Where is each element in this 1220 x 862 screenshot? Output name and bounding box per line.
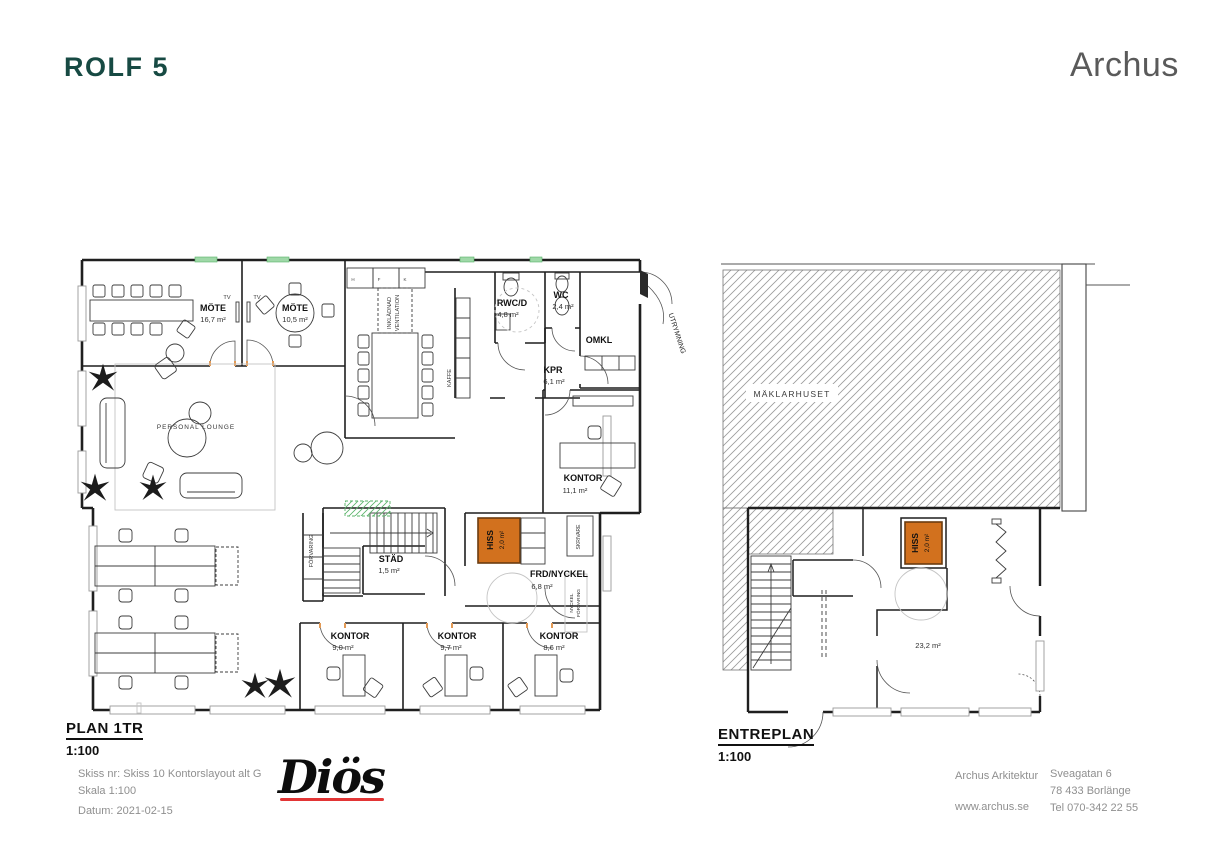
lift-area: 2,0 m² [924, 533, 931, 552]
address-city: 78 433 Borlänge [1050, 783, 1138, 800]
room-label: KONTOR [438, 631, 477, 641]
address-phone: Tel 070-342 22 55 [1050, 800, 1138, 817]
brand-logo: Archus [1070, 46, 1179, 85]
cabinet-letter: K [403, 277, 406, 282]
firm-website[interactable]: www.archus.se [955, 799, 1038, 816]
window-markers [195, 257, 545, 712]
room-area: 4,8 m² [497, 310, 519, 319]
room-area: 11,1 m² [563, 486, 588, 495]
meeting-room-1-furniture [90, 285, 250, 339]
cabinet-letter: F [378, 277, 381, 282]
tv-label: TV [253, 295, 260, 301]
plan1-title: PLAN 1TR [66, 720, 143, 740]
room-label: OMKL [586, 335, 613, 345]
floor-plan-entre: MÄKLARHUSET HISS 2,0 m² 23,2 m² [713, 256, 1133, 756]
room-label: KPR [543, 365, 563, 375]
firm-address: Sveagatan 6 78 433 Borlänge Tel 070-342 … [1050, 766, 1138, 817]
plan1-caption: PLAN 1TR 1:100 [66, 720, 143, 758]
sketch-scale: Skala 1:100 [78, 783, 261, 800]
utrymning-label: UTRYMNING [667, 312, 687, 354]
lift-area: 2,0 m² [499, 530, 506, 549]
room-label: MÖTE [200, 303, 226, 313]
stairs [323, 501, 437, 593]
tv-label: TV [223, 295, 230, 301]
sketch-date: Datum: 2021-02-15 [78, 803, 261, 820]
room-area: 6,1 m² [543, 377, 565, 386]
dios-logo: Diös [278, 750, 398, 801]
nyckel-label: FÖRVARING [575, 589, 582, 617]
small-offices-furniture [137, 655, 573, 713]
vent-label: INKLÄDNAD [386, 297, 393, 329]
dios-logo-text: Diös [278, 750, 398, 804]
address-street: Sveagatan 6 [1050, 766, 1138, 783]
room-label: KONTOR [540, 631, 579, 641]
room-area: 8,6 m² [543, 643, 565, 652]
room-label: WC [554, 290, 569, 300]
room-area: 16,7 m² [200, 315, 226, 324]
firm-name: Archus Arkitektur [955, 768, 1038, 785]
room-label: STÄD [379, 554, 404, 564]
open-office-desks [95, 529, 238, 689]
plan1-scale: 1:100 [66, 743, 143, 758]
wc-fixtures [495, 273, 635, 370]
plan2-caption: ENTREPLAN 1:100 [718, 726, 814, 764]
plan2-scale: 1:100 [718, 749, 814, 764]
forvaring-label: FÖRVARING [308, 535, 315, 568]
room-area: 2,4 m² [552, 302, 574, 311]
room-label: MÄKLARHUSET [754, 389, 831, 399]
sketch-info: Skiss nr: Skiss 10 Kontorslayout alt G S… [78, 766, 261, 820]
door-jambs [210, 361, 552, 628]
lift-label: HISS [910, 533, 920, 553]
room-label: RWC/D [497, 298, 528, 308]
drawing-sheet: ROLF 5 Archus [0, 0, 1220, 862]
skrivare-label: SKRIVARE [576, 524, 582, 550]
escape-route [640, 270, 664, 324]
room-area: 9,7 m² [440, 643, 462, 652]
room-area: 10,5 m² [282, 315, 308, 324]
room-label: KONTOR [564, 473, 603, 483]
entre-windows [833, 641, 1044, 716]
sketch-number: Skiss nr: Skiss 10 Kontorslayout alt G [78, 766, 261, 783]
nyckel-label: NYCKEL [569, 593, 575, 613]
room-area: 6,8 m² [531, 582, 553, 591]
firm-info: Archus Arkitektur www.archus.se [955, 768, 1038, 816]
room-label: KONTOR [331, 631, 370, 641]
floor-plan-1tr: MÖTE 16,7 m² TV TV MÖTE 10,5 m² H F K IN… [75, 256, 690, 718]
room-label: FRD/NYCKEL [530, 569, 589, 579]
room-label: MÖTE [282, 303, 308, 313]
room-area: 1,5 m² [378, 566, 400, 575]
room-area: 9,0 m² [332, 643, 354, 652]
room-label: PERSONAL LOUNGE [157, 424, 235, 431]
cabinet-letter: H [351, 277, 354, 282]
existing-building-hatch [721, 264, 1130, 670]
lift-label: HISS [485, 530, 495, 550]
vent-label: VENTILATION [395, 295, 401, 331]
kaffe-label: KAFFE [447, 369, 453, 387]
plan2-title: ENTREPLAN [718, 726, 814, 746]
page-title: ROLF 5 [64, 52, 169, 83]
room-area: 23,2 m² [915, 641, 941, 650]
central-table-area [347, 268, 470, 418]
